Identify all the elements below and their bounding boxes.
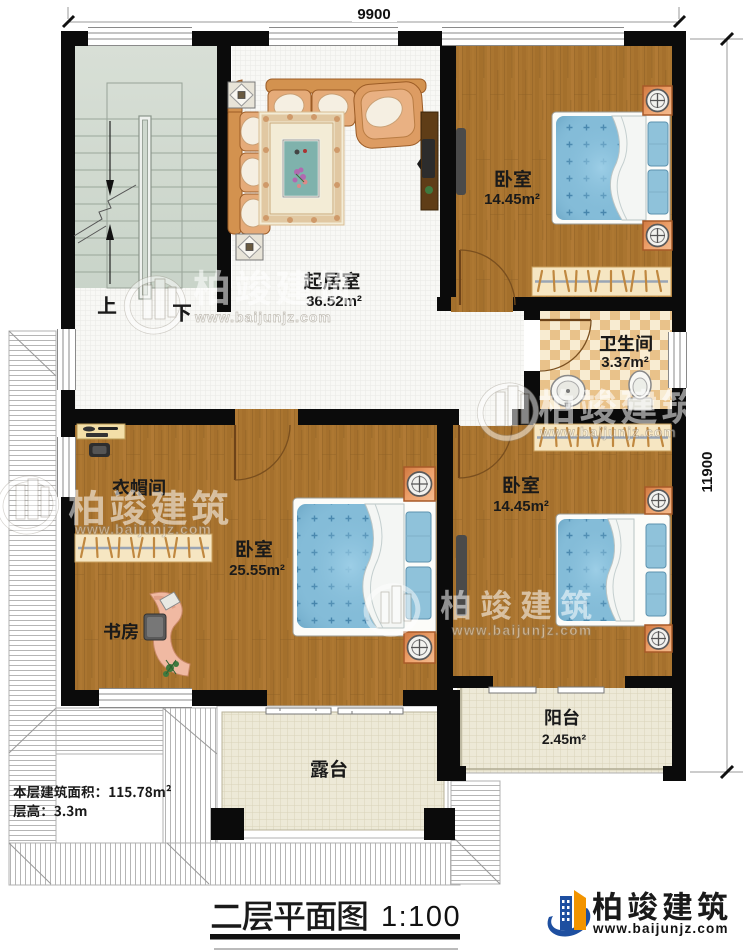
svg-text:14.45m²: 14.45m² xyxy=(493,498,549,515)
svg-text:www.baijunjz.com: www.baijunjz.com xyxy=(539,424,677,440)
svg-text:14.45m²: 14.45m² xyxy=(484,191,540,208)
svg-text:www.baijunjz.com: www.baijunjz.com xyxy=(592,921,729,936)
svg-text:1:100: 1:100 xyxy=(381,901,461,933)
svg-text:25.55m²: 25.55m² xyxy=(229,562,285,579)
svg-text:www.baijunjz.com: www.baijunjz.com xyxy=(194,309,332,325)
svg-text:2.45m²: 2.45m² xyxy=(542,731,587,747)
svg-text:9900: 9900 xyxy=(357,6,390,23)
svg-text:www.baijunjz.com: www.baijunjz.com xyxy=(451,623,593,638)
svg-text:3.37m²: 3.37m² xyxy=(601,354,649,371)
svg-text:11900: 11900 xyxy=(699,452,716,493)
